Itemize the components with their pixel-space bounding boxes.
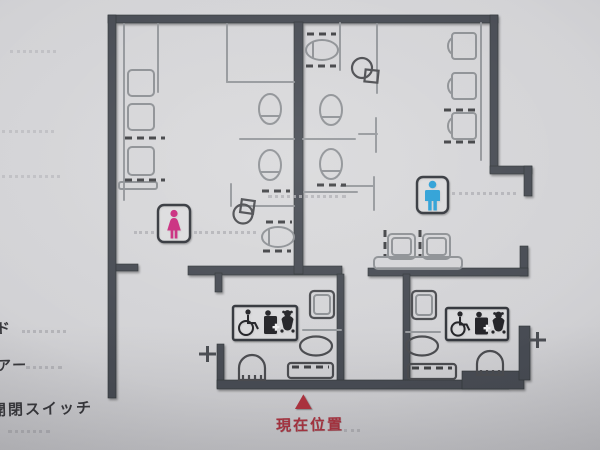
care-bed xyxy=(288,363,333,378)
braille-dots xyxy=(194,231,256,234)
current-location-triangle-icon: ▲ xyxy=(289,389,317,414)
wall-mid-center xyxy=(188,266,342,275)
accessible-sign-left xyxy=(233,306,297,340)
wall-right-upper xyxy=(490,15,498,173)
urinal xyxy=(448,33,476,59)
current-location-label: 現在位置 xyxy=(276,413,344,435)
washbasin xyxy=(128,70,154,96)
toilet xyxy=(300,337,332,356)
care-bed xyxy=(408,364,456,379)
left-label-fragment-1: ド xyxy=(0,318,12,338)
women-room-fixtures xyxy=(128,70,294,247)
door-switch-right xyxy=(529,332,546,348)
corner-washbasin xyxy=(352,58,379,83)
door-switch-label: 開閉スイッチ xyxy=(0,397,93,421)
washbasin xyxy=(128,104,154,130)
wall-right-step-v xyxy=(524,166,532,196)
wall-left xyxy=(108,15,116,398)
washbasin xyxy=(128,147,154,175)
floor-map-sign: ド アー 開閉スイッチ ▲ 現在位置 xyxy=(0,0,600,450)
floor-plan-drawing xyxy=(0,0,600,450)
washbasin xyxy=(423,234,450,259)
wall-mid-left-stub xyxy=(116,264,138,271)
men-room-sign xyxy=(417,177,448,213)
braille-dots xyxy=(2,130,54,133)
left-label-fragment-2: アー xyxy=(0,355,28,376)
braille-dots xyxy=(134,231,154,234)
toilet xyxy=(320,95,342,125)
washbasin xyxy=(412,291,436,319)
accessible-sign-right xyxy=(446,308,508,340)
washbasin xyxy=(310,291,334,318)
braille-dots xyxy=(268,195,346,198)
braille-dots xyxy=(22,330,66,333)
corner-washbasin xyxy=(234,199,255,223)
wall-acc-left-stub xyxy=(215,273,222,292)
toilet xyxy=(259,150,281,180)
toilet xyxy=(259,94,281,124)
toilet xyxy=(320,149,342,179)
toilet xyxy=(306,40,338,60)
braille-dots xyxy=(344,429,360,432)
braille-dots xyxy=(10,50,56,53)
braille-dots xyxy=(8,430,50,433)
wall-acc-right-thick-v xyxy=(519,326,530,380)
toilet xyxy=(406,337,438,356)
braille-dots xyxy=(26,366,62,369)
braille-dots xyxy=(2,175,60,178)
accessible-toilet-seat xyxy=(239,355,265,380)
wall-center-divider xyxy=(294,22,303,274)
washbasin xyxy=(388,234,415,259)
urinal xyxy=(448,73,476,99)
urinal xyxy=(448,113,476,139)
door-switch-left xyxy=(199,346,216,362)
braille-dots xyxy=(452,192,516,195)
toilet xyxy=(262,227,294,247)
women-room-sign xyxy=(158,205,190,242)
